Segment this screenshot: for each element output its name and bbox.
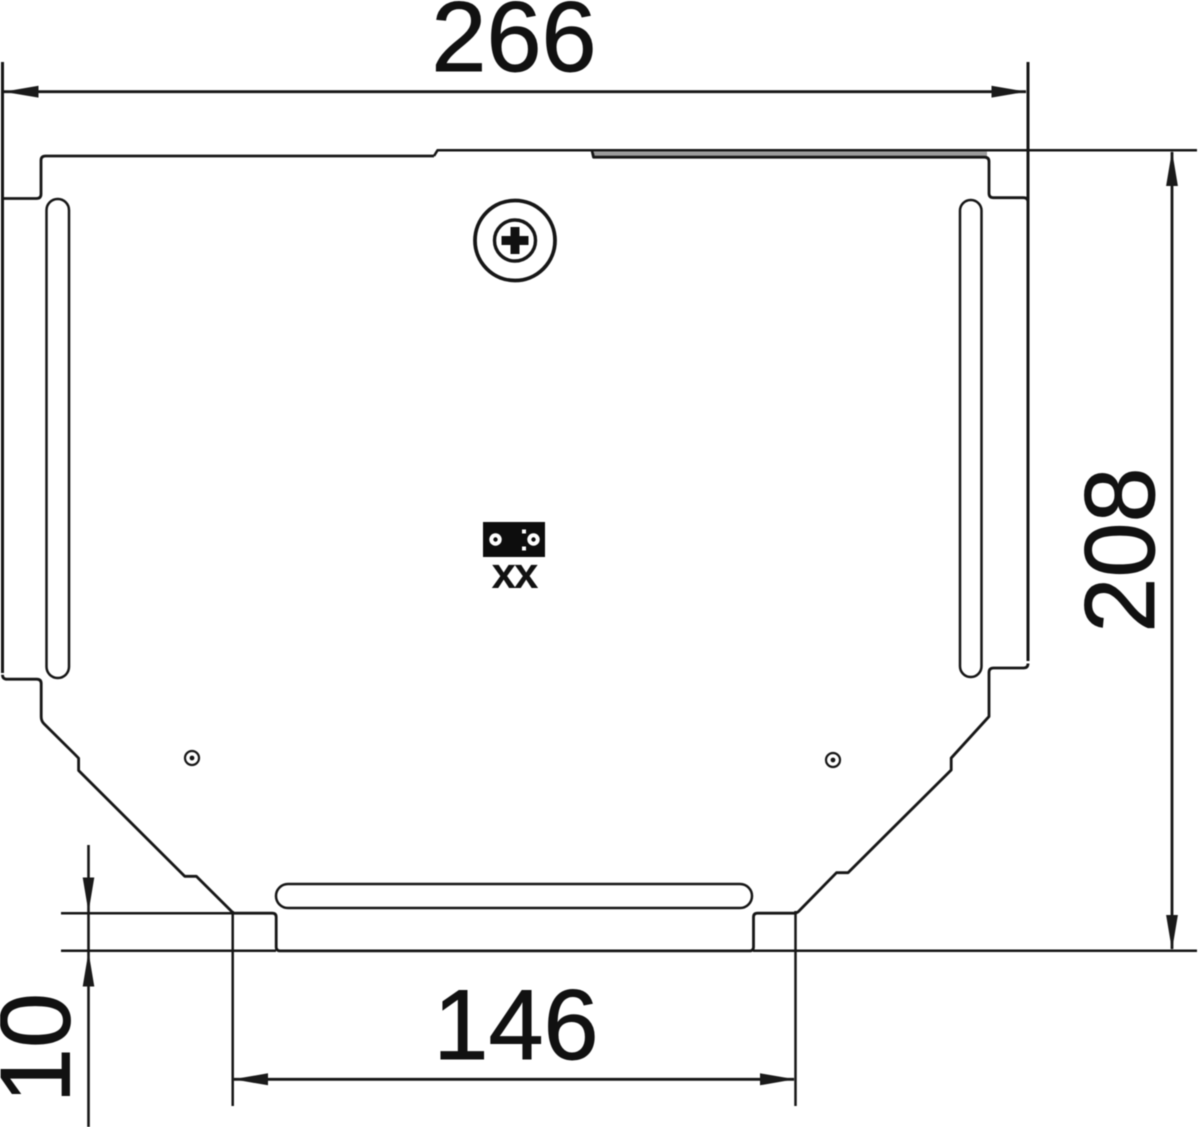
svg-text:146: 146 xyxy=(433,969,598,1080)
svg-text:10: 10 xyxy=(0,993,91,1103)
svg-text:208: 208 xyxy=(1064,467,1175,632)
svg-text:266: 266 xyxy=(431,0,596,92)
svg-text:xx: xx xyxy=(492,549,539,598)
